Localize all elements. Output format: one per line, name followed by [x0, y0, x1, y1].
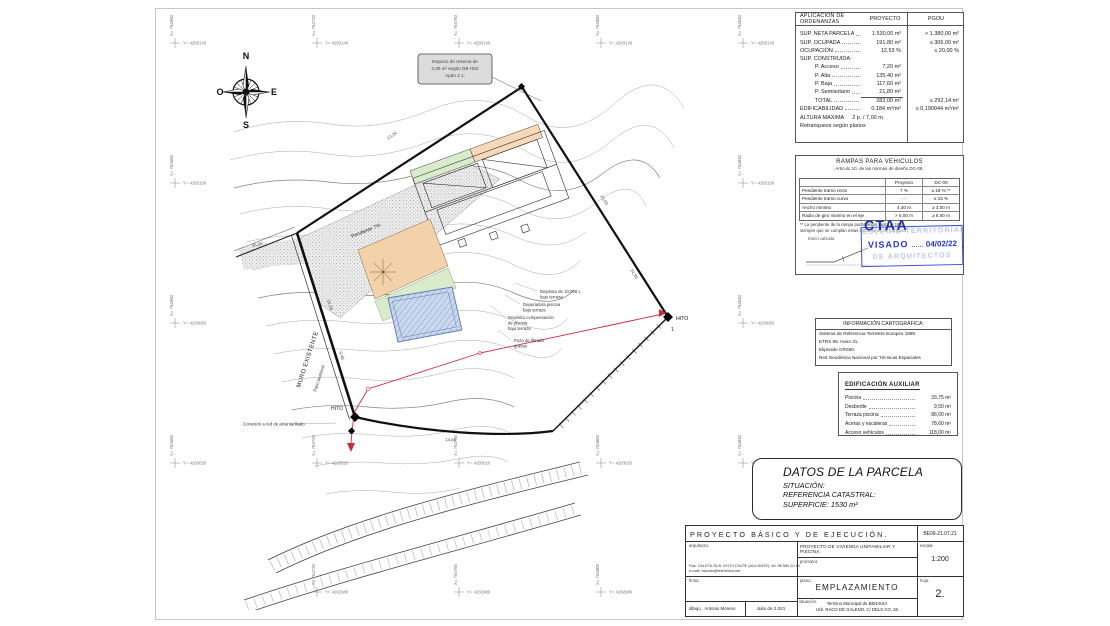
cartografia-line: Red Geodésica Nacional por Técnicas Espa… [816, 354, 951, 362]
svg-text:Y= 4283060: Y= 4283060 [751, 321, 775, 326]
table-row: Pendiente tramo recto7 %≤ 18 % ** [800, 187, 959, 195]
pozo-label: Pozo de filtrado [514, 338, 544, 343]
hoja-value: 2. [917, 588, 963, 600]
table-row: P. Alta135,40 m² [796, 70, 963, 78]
firma-label: firma. [689, 578, 700, 583]
svg-text:X= 764840: X= 764840 [737, 14, 742, 36]
reserva-callout: Espacio de reserva de 3,30 m² según DB H… [418, 54, 541, 101]
table-header-row: ProyectoDC-09 [800, 179, 959, 187]
edificacion-auxiliar-title: EDIFICACIÓN AUXILIAR [845, 382, 920, 390]
table-row: Ancho minimo4,40 m≥ 3,00 m [800, 204, 959, 212]
table-row: P. Baja117,60 m² [796, 79, 963, 87]
svg-text:X= 764840: X= 764840 [737, 434, 742, 456]
svg-text:Y= 4283020: Y= 4283020 [183, 461, 207, 466]
compass-n: N [243, 51, 250, 61]
svg-text:Y= 4283140: Y= 4283140 [325, 41, 349, 46]
dim-label: 9,48 [338, 351, 346, 361]
dibujo-cell: dibujo. Antonio Moreno [689, 606, 735, 611]
stamp-watermark: DE ARQUITECTOS [862, 252, 962, 261]
table-row: P. Semisotano21,80 m² [796, 87, 963, 95]
compass-e: E [271, 87, 277, 97]
deposito-label: bajo terraza [540, 295, 563, 300]
parcela-line: SITUACIÓN: [783, 481, 961, 490]
svg-text:X= 764800: X= 764800 [595, 14, 600, 36]
divider [686, 601, 797, 602]
compensacion-label: Depósito compensación [508, 315, 554, 320]
ramp-diagram-label: tramo calzada [808, 236, 834, 241]
svg-text:Y= 4283100: Y= 4283100 [183, 181, 207, 186]
col-pgou: PGOU [909, 16, 963, 22]
col-proyecto: PROYECTO [861, 16, 909, 22]
edificacion-auxiliar-box: EDIFICACIÓN AUXILIAR Piscina33,75 m² Des… [838, 372, 958, 436]
svg-text:X= 764840: X= 764840 [737, 154, 742, 176]
drawing-sheet-page: HITO 1 HITO MURO EXISTENTE Paso peatonal… [0, 0, 1110, 626]
altura-row: ALTURA MAXIMA2 p. / 7,00 m. [796, 112, 963, 121]
table-row: SUP. NETA PARCELA1.530,00 m²> 1.380,00 m… [796, 29, 963, 37]
svg-text:X= 764840: X= 764840 [737, 294, 742, 316]
reserva-line: 3,30 m² según DB HS2 [431, 66, 479, 71]
rampas-subtitle: Articulo 10. de las normas de diseño DC-… [796, 166, 963, 171]
compensacion-label: de piscina [508, 321, 528, 326]
visado-label: VISADO [868, 239, 909, 250]
ctaa-logo: CTAA [864, 217, 909, 234]
reserva-line: Apdo 2.1. [445, 73, 465, 78]
datos-parcela-title: DATOS DE LA PARCELA [783, 465, 961, 479]
arquitecto-label: arquitecto. [689, 543, 709, 548]
plano-value: EMPLAZAMIENTO [797, 583, 917, 592]
ordenanzas-table: APLICACION DE ORDENANZAS PROYECTO PGOU S… [795, 12, 964, 143]
svg-text:X= 764680: X= 764680 [169, 434, 174, 456]
svg-text:Y= 4282980: Y= 4282980 [325, 590, 349, 595]
parcela-line: SUPERFICIE: 1530 m² [783, 500, 961, 509]
situacion-line: Termino Municipal de BENISSA [797, 601, 917, 606]
retranqueos-row: Retranqueos según planos [796, 121, 963, 129]
hito-1-number: 1 [671, 327, 674, 333]
divider [686, 576, 963, 577]
cartografia-line: ETRS 89. Huso 31. [816, 338, 951, 346]
parcela-line: REFERENCIA CATASTRAL: [783, 490, 961, 499]
project-ref: BE09-21.07.21 [917, 531, 963, 537]
svg-text:Y= 4283140: Y= 4283140 [183, 41, 207, 46]
table-row: Piscina33,75 m² [839, 392, 957, 401]
title-block: PROYECTO BÁSICO Y DE EJECUCIÓN. BE09-21.… [685, 525, 964, 617]
hoja-label: hoja. [920, 578, 929, 583]
table-row: Terraza piscina86,00 m² [839, 410, 957, 419]
compensacion-label: bajo terraza [508, 326, 531, 331]
svg-text:X= 764760: X= 764760 [453, 563, 458, 585]
rampas-title: RAMPAS PARA VEHICULOS [796, 159, 963, 165]
rampas-table: ProyectoDC-09 Pendiente tramo recto7 %≤ … [799, 178, 960, 221]
svg-text:X= 764760: X= 764760 [453, 14, 458, 36]
datos-parcela-box: DATOS DE LA PARCELA SITUACIÓN: REFERENCI… [752, 458, 962, 520]
reserva-line: Espacio de reserva de [432, 59, 478, 64]
road-lines [244, 462, 588, 610]
ordenanzas-title: APLICACION DE ORDENANZAS [796, 13, 861, 25]
arquitecto-address: Pas. CALETA 25-B, 03710 CALPE (ALICANTE)… [689, 564, 801, 568]
escala-label: escala. [920, 543, 934, 548]
cartografia-box: INFORMACIÓN CARTOGRÁFICA: Sistema de Ref… [815, 318, 952, 366]
visado-date: 04/02/22 [926, 239, 957, 249]
depuradora-label: Depuradora piscina [523, 302, 561, 307]
svg-text:X= 764760: X= 764760 [453, 434, 458, 456]
svg-text:X= 764720: X= 764720 [311, 563, 316, 585]
hito-2-label: HITO [331, 406, 343, 412]
svg-text:X= 764680: X= 764680 [169, 14, 174, 36]
escala-value: 1:200 [917, 556, 963, 563]
hito-1-label: HITO [676, 316, 688, 322]
stamp-dotted-leader [912, 246, 923, 247]
project-type-header: PROYECTO BÁSICO Y DE EJECUCIÓN. [690, 530, 889, 539]
promotor-label: promotor. [800, 559, 818, 564]
conexion-label: Conexión a red de alcantarillado [243, 422, 305, 427]
svg-text:Y= 4283140: Y= 4283140 [467, 41, 491, 46]
table-row: SUP. OCUPADA191,80 m²≤ 306,00 m² [796, 37, 963, 45]
cartografia-title: INFORMACIÓN CARTOGRÁFICA: [816, 319, 951, 330]
svg-text:Y= 4283140: Y= 4283140 [609, 41, 633, 46]
svg-text:X= 764720: X= 764720 [311, 14, 316, 36]
dim-label: 16,93 [599, 194, 609, 206]
table-row-total: TOTAL282,00 m²≤ 292,14 m² [796, 95, 963, 103]
dim-label: 13,29 [386, 130, 398, 140]
compass-s: S [243, 120, 249, 130]
svg-text:Y= 4283060: Y= 4283060 [183, 321, 207, 326]
svg-text:Y= 4283140: Y= 4283140 [751, 41, 775, 46]
svg-text:X= 764680: X= 764680 [169, 294, 174, 316]
ordenanzas-header: APLICACION DE ORDENANZAS PROYECTO PGOU [796, 13, 963, 26]
svg-text:Y= 4282980: Y= 4282980 [467, 590, 491, 595]
svg-text:Y= 4282980: Y= 4282980 [609, 590, 633, 595]
paso-peatonal-label: Paso peatonal [312, 365, 325, 393]
deposito-label: Depósito de 10.000 L [540, 289, 581, 294]
table-row: SUP. CONSTRUIDA: [796, 54, 963, 62]
svg-text:Y= 4283020: Y= 4283020 [467, 461, 491, 466]
table-row: Aceras y escaleras78,60 m² [839, 418, 957, 427]
cartografia-line: Elipsoide GRS80. [816, 346, 951, 354]
svg-text:X= 764800: X= 764800 [595, 563, 600, 585]
divider [797, 557, 917, 558]
svg-text:Y= 4283020: Y= 4283020 [609, 461, 633, 466]
table-row: EDIFICABILIDAD0,184 m²/m²≤ 0,190944 m²/m… [796, 104, 963, 112]
svg-text:X= 764720: X= 764720 [311, 434, 316, 456]
table-row: Acceso vehículos118,00 m² [839, 427, 957, 436]
divider [686, 541, 963, 542]
svg-text:Y= 4283020: Y= 4283020 [325, 461, 349, 466]
table-row: OCUPACIÓN12,53 %≤ 20,00 % [796, 46, 963, 54]
arquitecto-email: e-mail: estudio@telefonica.net [689, 569, 740, 573]
depuradora-label: bajo terraza [523, 308, 546, 313]
divider [917, 526, 918, 616]
svg-text:Y= 4283100: Y= 4283100 [751, 181, 775, 186]
compass-star [222, 66, 270, 118]
pozo-label: gravas [514, 344, 527, 349]
sewer-line [347, 309, 666, 452]
fecha-cell: Julio de 2.021 [745, 606, 797, 611]
table-row: P. Acceso7,20 m² [796, 62, 963, 70]
cartografia-line: Sistema de Referencia Terrestre Europeo … [816, 330, 951, 338]
situacion-line: Urb. RACO DE GALENO, C/ DELS CO, 26 [797, 607, 917, 612]
table-row: Desborde9,50 m² [839, 401, 957, 410]
svg-text:X= 764680: X= 764680 [169, 154, 174, 176]
table-row: Pendiente tramo curvo- -≤ 15 % [800, 195, 959, 203]
project-description: PROYECTO DE VIVIENDA UNIFAMILIAR Y PISCI… [800, 544, 914, 554]
compass-rose: N S E O [216, 46, 278, 130]
svg-text:X= 764800: X= 764800 [595, 434, 600, 456]
